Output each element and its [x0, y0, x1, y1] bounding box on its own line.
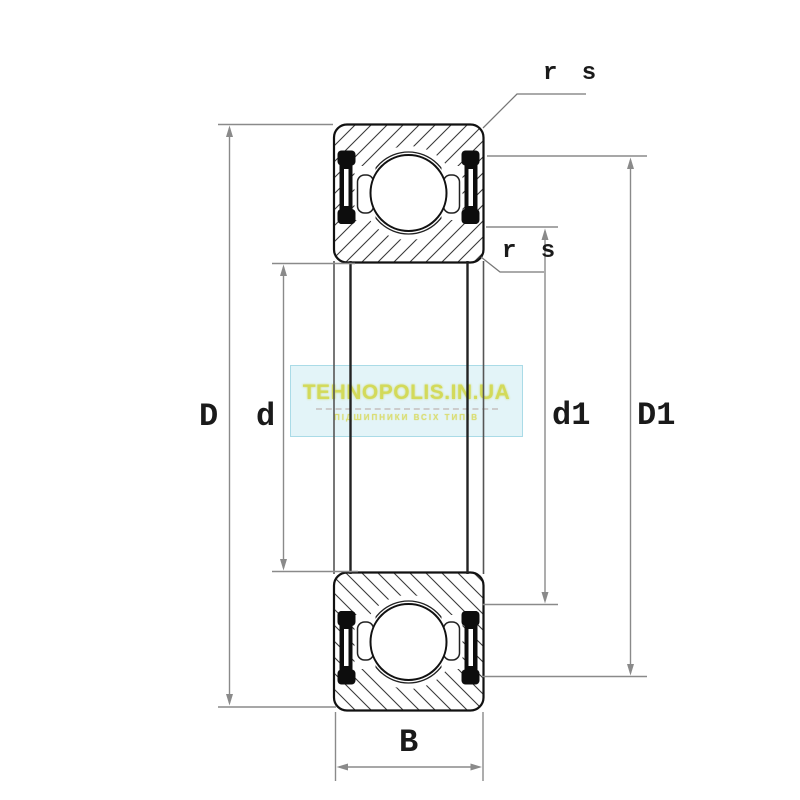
- label-outer-shoulder-diameter: D1: [637, 400, 675, 432]
- bearing-technical-drawing: TEHNOPOLIS.IN.UA ПІДШИПНИКИ ВСІХ ТИПІВ: [0, 0, 800, 800]
- bearing-cross-section-drawing: [0, 0, 800, 800]
- bottom-section: [334, 573, 484, 711]
- label-chamfer-rs-top: r s: [543, 62, 601, 86]
- bore-lines: [334, 261, 484, 574]
- label-outer-diameter: D: [199, 401, 218, 433]
- label-bore-diameter: d: [256, 401, 275, 433]
- label-chamfer-rs-mid: r s: [502, 240, 560, 264]
- top-section: [334, 125, 484, 263]
- label-width: B: [399, 727, 418, 759]
- label-inner-shoulder-diameter: d1: [552, 400, 590, 432]
